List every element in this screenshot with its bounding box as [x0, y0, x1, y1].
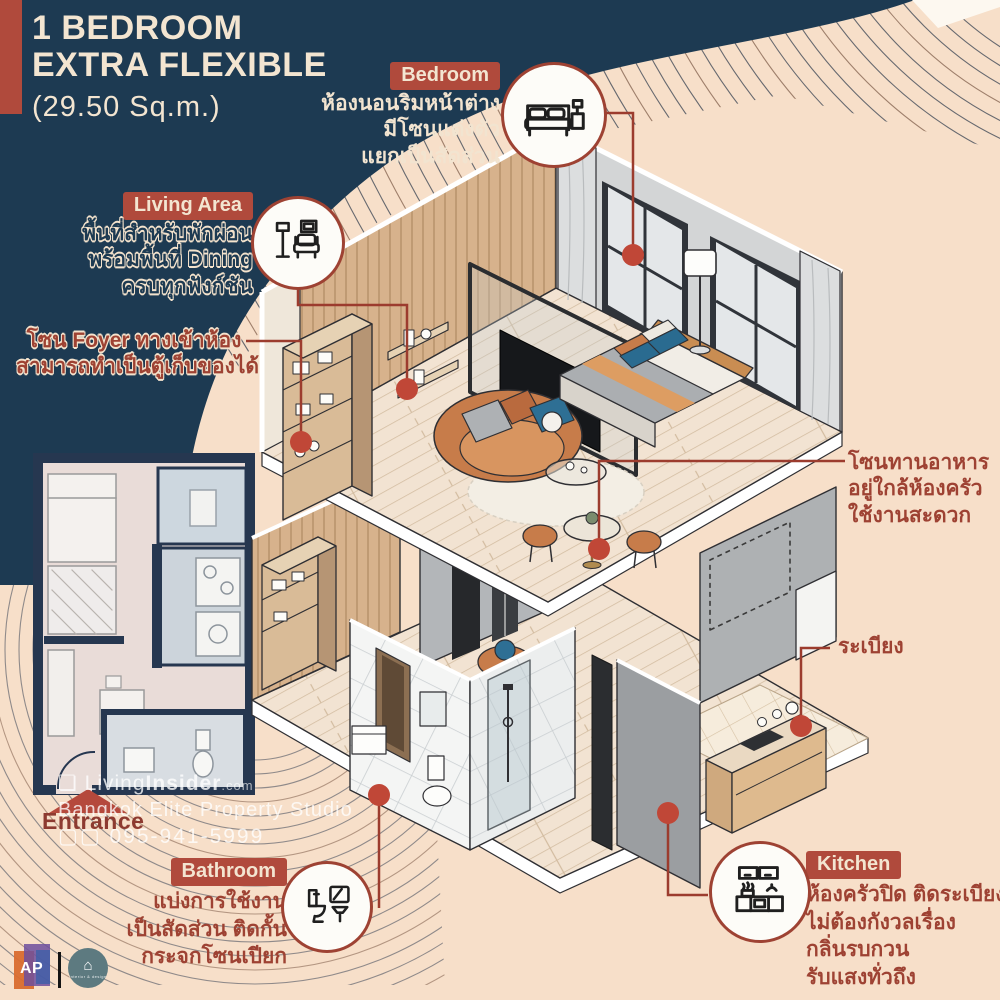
dining-dot [588, 538, 610, 560]
bathroom-label-group: Bathroom แบ่งการใช้งาน เป็นสัดส่วน ติดกั… [127, 860, 287, 971]
title-block: 1 BEDROOM EXTRA FLEXIBLE (29.50 Sq.m.) [32, 10, 327, 124]
plan-bed [48, 474, 116, 562]
kitchen-counter-icon [728, 860, 791, 923]
kitchen-badge: Kitchen [806, 851, 901, 879]
infographic-canvas: 1 BEDROOM EXTRA FLEXIBLE (29.50 Sq.m.) B… [0, 0, 1000, 1000]
ap-logo-text: AP [20, 960, 43, 978]
foyer-desc-2: สามารถทำเป็นตู้เก็บของได้ [16, 354, 252, 380]
logo-divider [58, 952, 61, 988]
living-desc-2: พร้อมพื้นที่ Dining [82, 247, 253, 273]
floorplan-2d [38, 458, 250, 794]
dining-desc-3: ใช้งานสะดวก [848, 503, 989, 529]
bathroom-badge: Bathroom [171, 858, 287, 886]
ap-logo: AP [12, 942, 54, 992]
title-line-2: EXTRA FLEXIBLE [32, 47, 327, 84]
living-desc-3: ครบทุกฟังก์ชัน [82, 274, 253, 300]
plan-sofa [48, 650, 74, 736]
living-icon-circle [258, 203, 338, 283]
living-dot [396, 378, 418, 400]
bathroom-desc-2: เป็นสัดส่วน ติดกั้น [127, 916, 287, 944]
bedroom-desc-2: มีโซนแต่งตัว [321, 117, 500, 143]
toilet-sink-icon [299, 879, 355, 935]
sofa-lamp-icon [269, 214, 327, 272]
foyer-label: โซน Foyer ทางเข้าห้อง สามารถทำเป็นตู้เก็… [16, 328, 252, 381]
kitchen-icon-circle [716, 848, 804, 936]
bedroom-badge: Bedroom [390, 62, 500, 90]
red-accent-bar [0, 0, 22, 114]
living-label-group: Living Area พื้นที่สำหรับพักผ่อน พร้อมพื… [82, 194, 253, 300]
bathroom-desc-1: แบ่งการใช้งาน [127, 888, 287, 916]
white-wedge [912, 0, 1000, 28]
kitchen-label-group: Kitchen ห้องครัวปิด ติดระเบียง ไม่ต้องกั… [806, 853, 1000, 992]
entrance-label: Entrance [42, 808, 144, 835]
partner-logo-subtext: interior & design [69, 975, 106, 979]
living-desc-1: พื้นที่สำหรับพักผ่อน [82, 221, 253, 247]
dining-desc-1: โซนทานอาหาร [848, 450, 989, 476]
title-area: (29.50 Sq.m.) [32, 92, 327, 123]
living-badge: Living Area [123, 192, 253, 220]
kitchen-desc-4: รับแสงทั่วถึง [806, 964, 1000, 992]
bed-icon [521, 82, 587, 148]
kitchen-dot [657, 802, 679, 824]
kitchen-desc-2: ไม่ต้องกังวลเรื่อง [806, 909, 1000, 937]
watermark-brand: ❏ LivingInsider.com [58, 770, 353, 797]
balcony-dot [790, 715, 812, 737]
bathroom-desc-3: กระจกโซนเปียก [127, 943, 287, 971]
bedroom-icon-circle [508, 69, 600, 161]
house-circle-logo: ⌂ interior & design [68, 948, 108, 988]
house-icon: ⌂ [83, 958, 92, 973]
bedroom-desc-3: แยกเป็นสัดส่วน [321, 144, 500, 170]
kitchen-desc-1: ห้องครัวปิด ติดระเบียง [806, 881, 1000, 909]
bedroom-dot [622, 244, 644, 266]
dining-desc-2: อยู่ใกล้ห้องครัว [848, 476, 989, 502]
kitchen-desc-3: กลิ่นรบกวน [806, 936, 1000, 964]
balcony-label: ระเบียง [838, 634, 904, 660]
bathroom-icon-circle [288, 868, 366, 946]
dining-label: โซนทานอาหาร อยู่ใกล้ห้องครัว ใช้งานสะดวก [848, 450, 989, 529]
foyer-desc-1: โซน Foyer ทางเข้าห้อง [16, 328, 252, 354]
foyer-dot [290, 431, 312, 453]
foyer-shelf-unit [283, 314, 372, 520]
bedroom-label-group: Bedroom ห้องนอนริมหน้าต่าง มีโซนแต่งตัว … [321, 64, 500, 170]
title-line-1: 1 BEDROOM [32, 10, 327, 47]
bathroom-dot [368, 784, 390, 806]
bedroom-desc-1: ห้องนอนริมหน้าต่าง [321, 91, 500, 117]
